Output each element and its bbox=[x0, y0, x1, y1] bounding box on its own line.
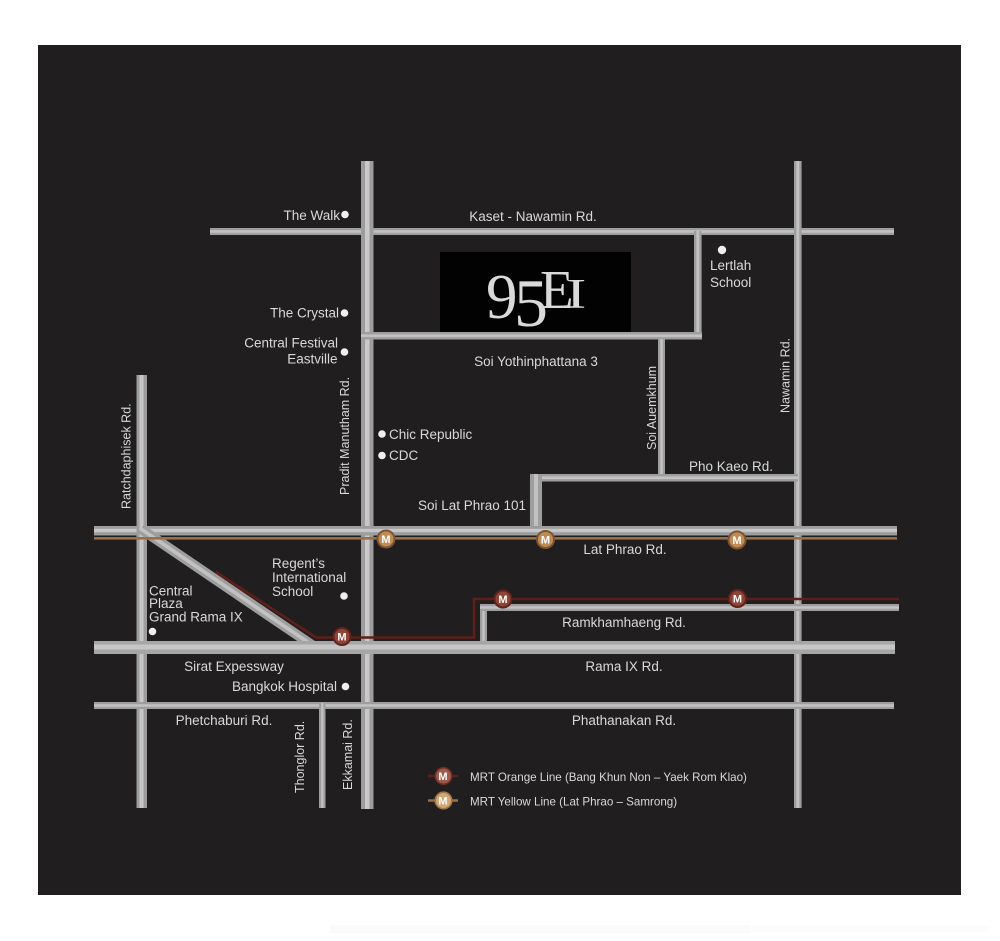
svg-text:Phathanakan Rd.: Phathanakan Rd. bbox=[572, 713, 676, 728]
svg-text:Pradit Manutham Rd.: Pradit Manutham Rd. bbox=[338, 377, 352, 495]
svg-text:Lertlah: Lertlah bbox=[710, 258, 751, 273]
svg-text:Phetchaburi Rd.: Phetchaburi Rd. bbox=[176, 713, 273, 728]
svg-text:School: School bbox=[272, 584, 313, 599]
svg-text:M: M bbox=[541, 535, 550, 547]
svg-text:Sirat Expessway: Sirat Expessway bbox=[184, 659, 284, 674]
svg-text:M: M bbox=[438, 796, 447, 808]
svg-text:I: I bbox=[566, 271, 586, 318]
svg-text:M: M bbox=[337, 632, 346, 644]
svg-text:M: M bbox=[733, 594, 742, 606]
svg-text:International: International bbox=[272, 570, 346, 585]
svg-text:CDC: CDC bbox=[389, 448, 418, 463]
svg-text:MRT Yellow Line (Lat Phrao – S: MRT Yellow Line (Lat Phrao – Samrong) bbox=[470, 796, 677, 809]
svg-text:M: M bbox=[732, 535, 741, 547]
svg-text:Ramkhamhaeng Rd.: Ramkhamhaeng Rd. bbox=[562, 615, 686, 630]
svg-text:Soi Lat Phrao 101: Soi Lat Phrao 101 bbox=[418, 498, 526, 513]
svg-text:Bangkok Hospital: Bangkok Hospital bbox=[232, 679, 337, 694]
svg-text:M: M bbox=[438, 771, 447, 783]
svg-text:School: School bbox=[710, 275, 751, 290]
svg-text:Soi Yothinphattana 3: Soi Yothinphattana 3 bbox=[474, 354, 598, 369]
svg-text:Nawamin Rd.: Nawamin Rd. bbox=[779, 338, 793, 413]
svg-text:Regent’s: Regent’s bbox=[272, 556, 325, 571]
svg-text:The Crystal: The Crystal bbox=[270, 306, 339, 321]
svg-text:Ekkamai Rd.: Ekkamai Rd. bbox=[341, 719, 355, 790]
svg-text:M: M bbox=[498, 594, 507, 606]
svg-text:The Walk: The Walk bbox=[283, 208, 340, 223]
svg-text:MRT Orange Line (Bang Khun Non: MRT Orange Line (Bang Khun Non – Yaek Ro… bbox=[470, 771, 747, 784]
svg-text:Chic Republic: Chic Republic bbox=[389, 427, 473, 442]
svg-text:Pho Kaeo Rd.: Pho Kaeo Rd. bbox=[689, 459, 773, 474]
svg-text:Eastville: Eastville bbox=[287, 352, 337, 367]
svg-text:Grand Rama IX: Grand Rama IX bbox=[149, 610, 243, 625]
svg-text:M: M bbox=[381, 534, 390, 546]
svg-text:9: 9 bbox=[486, 262, 518, 332]
svg-text:Rama IX Rd.: Rama IX Rd. bbox=[585, 659, 662, 674]
svg-text:Ratchdaphisek Rd.: Ratchdaphisek Rd. bbox=[120, 403, 134, 509]
svg-text:Thonglor Rd.: Thonglor Rd. bbox=[293, 721, 307, 793]
svg-text:Lat Phrao Rd.: Lat Phrao Rd. bbox=[583, 542, 666, 557]
svg-text:Soi Auemkhum: Soi Auemkhum bbox=[645, 366, 659, 450]
svg-text:Kaset - Nawamin Rd.: Kaset - Nawamin Rd. bbox=[469, 209, 597, 224]
svg-text:Central Festival: Central Festival bbox=[244, 336, 338, 351]
